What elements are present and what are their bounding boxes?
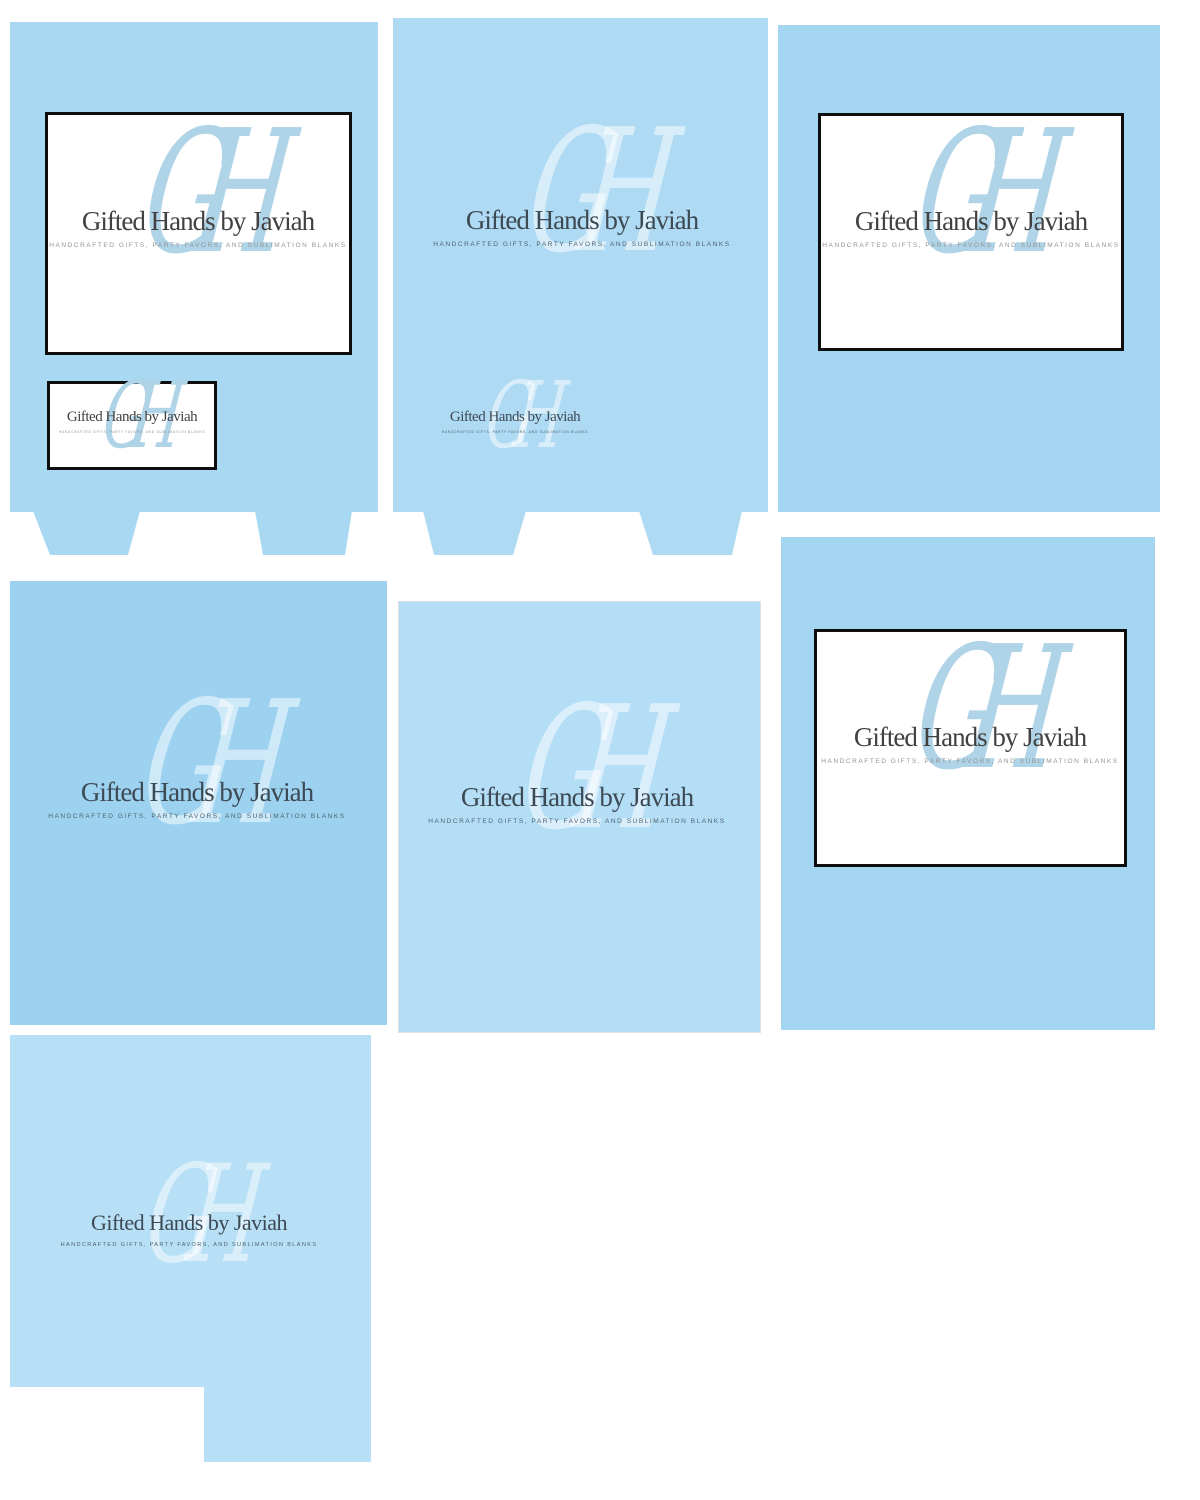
brand-logo-top-left-large: GH Gifted Hands by Javiah HANDCRAFTED GI…: [18, 150, 378, 350]
brand-tagline: HANDCRAFTED GIFTS, PARTY FAVORS, AND SUB…: [48, 814, 345, 821]
brand-tagline: HANDCRAFTED GIFTS, PARTY FAVORS, AND SUB…: [821, 759, 1118, 766]
gh-monogram: GH: [515, 684, 650, 854]
brand-title: Gifted Hands by Javiah: [91, 1212, 287, 1234]
brand-title: Gifted Hands by Javiah: [855, 208, 1087, 235]
brand-logo-middle-right: GH Gifted Hands by Javiah HANDCRAFTED GI…: [790, 666, 1150, 866]
brand-logo-top-right: GH Gifted Hands by Javiah HANDCRAFTED GI…: [791, 150, 1151, 350]
box-template-sheet: GH Gifted Hands by Javiah HANDCRAFTED GI…: [0, 0, 1200, 1500]
gh-monogram: GH: [909, 108, 1044, 278]
gh-monogram: GH: [135, 679, 270, 849]
brand-tagline: HANDCRAFTED GIFTS, PARTY FAVORS, AND SUB…: [442, 431, 588, 434]
panel-top-left-tab-2: [255, 511, 352, 555]
brand-title: Gifted Hands by Javiah: [81, 779, 313, 806]
brand-tagline: HANDCRAFTED GIFTS, PARTY FAVORS, AND SUB…: [61, 1243, 318, 1249]
brand-logo-bottom-left: GH Gifted Hands by Javiah HANDCRAFTED GI…: [29, 1165, 349, 1325]
brand-tagline: HANDCRAFTED GIFTS, PARTY FAVORS, AND SUB…: [822, 243, 1119, 250]
brand-title: Gifted Hands by Javiah: [67, 410, 197, 425]
brand-title: Gifted Hands by Javiah: [82, 208, 314, 235]
brand-title: Gifted Hands by Javiah: [854, 724, 1086, 751]
gh-monogram: GH: [136, 108, 271, 278]
panel-top-middle-tab-1: [423, 511, 526, 555]
brand-logo-top-middle-small: GH Gifted Hands by Javiah HANDCRAFTED GI…: [430, 381, 600, 476]
brand-title: Gifted Hands by Javiah: [450, 410, 580, 425]
panel-top-left-tab-1: [33, 511, 140, 555]
brand-tagline: HANDCRAFTED GIFTS, PARTY FAVORS, AND SUB…: [433, 242, 730, 249]
brand-logo-top-left-small: GH Gifted Hands by Javiah HANDCRAFTED GI…: [47, 381, 217, 476]
gh-monogram: GH: [520, 107, 655, 277]
brand-title: Gifted Hands by Javiah: [466, 207, 698, 234]
gh-monogram: GH: [908, 624, 1043, 794]
brand-tagline: HANDCRAFTED GIFTS, PARTY FAVORS, AND SUB…: [49, 243, 346, 250]
brand-logo-top-middle-large: GH Gifted Hands by Javiah HANDCRAFTED GI…: [402, 149, 762, 349]
panel-top-middle-tab-2: [639, 511, 742, 555]
brand-tagline: HANDCRAFTED GIFTS, PARTY FAVORS, AND SUB…: [59, 431, 205, 434]
brand-logo-middle-left: GH Gifted Hands by Javiah HANDCRAFTED GI…: [17, 721, 377, 921]
brand-logo-middle-center: GH Gifted Hands by Javiah HANDCRAFTED GI…: [397, 726, 757, 926]
brand-title: Gifted Hands by Javiah: [461, 784, 693, 811]
brand-tagline: HANDCRAFTED GIFTS, PARTY FAVORS, AND SUB…: [428, 819, 725, 826]
